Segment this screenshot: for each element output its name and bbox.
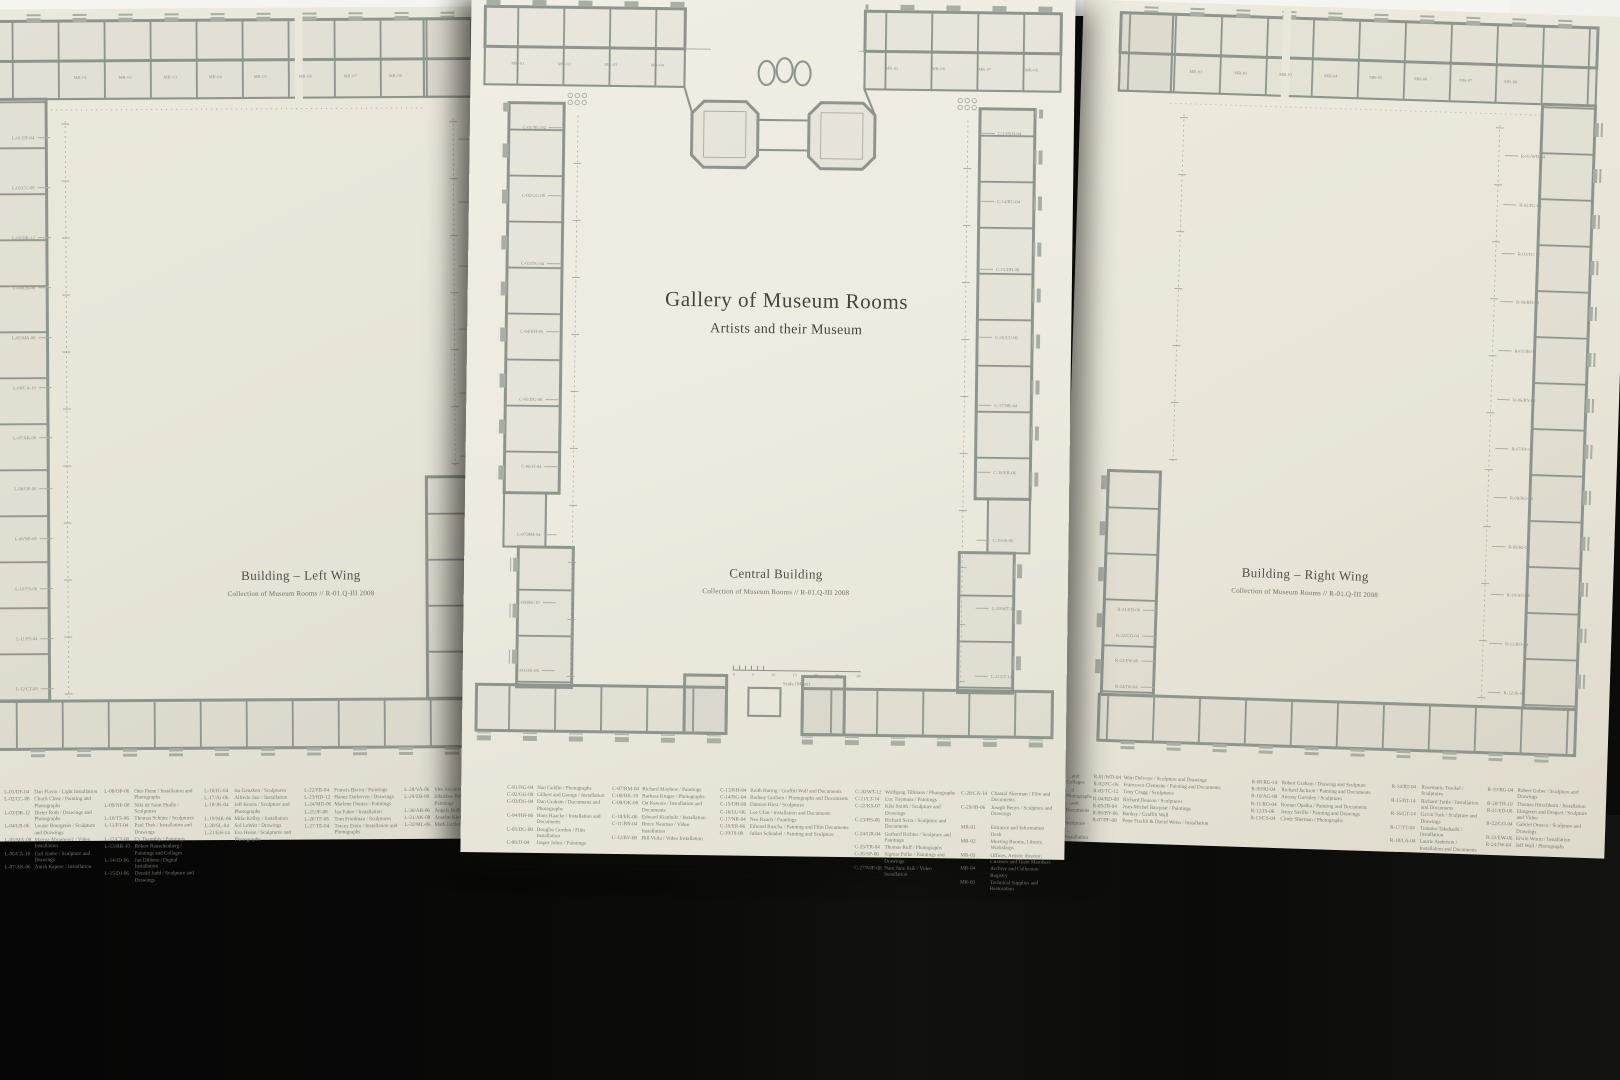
- poster-left-wing: MR-01MR-02MR-03MR-04MR-05MR-06MR-07MR-08…: [0, 6, 511, 841]
- legend-entry: C-12/BV-08Bill Viola / Video Installatio…: [612, 835, 714, 843]
- edge-label: L-03/DR-12: [12, 235, 51, 240]
- edge-label-column-left: C-01/NG-04C-02/GG-08C-03/DG-04C-04/HH-06…: [503, 125, 562, 674]
- edge-label: C-09/OK-06: [516, 668, 555, 674]
- legend-entry: C-03/DG-04Dan Graham / Documents and Pho…: [507, 799, 606, 813]
- edge-label: R-11/RO-04: [1489, 641, 1528, 647]
- legend-column: C-13/KH-04Keith Haring / Graffiti Wall a…: [719, 787, 855, 891]
- edge-label: R-12/JS-06: [1487, 690, 1524, 696]
- room-code: MR-08: [1025, 67, 1038, 72]
- legend-entry: C-27/NJP-08Nam June Paik / Video Install…: [854, 865, 954, 879]
- room-code: MR-06: [299, 74, 312, 79]
- legend-entry: C-09/OK-06On Kawara / Installation and D…: [612, 800, 714, 814]
- legend-entry: L-14/JD-06Jan Dibbets / Digital Installa…: [105, 857, 199, 870]
- legend-entry: C-24/GR-04Gerhard Richter / Sculpture an…: [855, 831, 955, 845]
- edge-label: L-05/MA-08: [12, 335, 52, 340]
- poster-central-building: MR-01MR-02MR-03MR-04 MR-05MR-06MR-07MR-0…: [460, 0, 1075, 860]
- legend-column: C-28/CA-14Chantal Akerman / Film and Doc…: [960, 791, 1059, 895]
- legend-column: C-01/NG-04Nan Goldin / PhotographsC-02/G…: [506, 785, 612, 889]
- legend-entry: L-25/JF-08Jan Fabre / Installation: [304, 809, 398, 816]
- edge-label-column-left: R-21/ED-06R-22/GO-04R-23/EW-06R-24/JW-04: [1090, 606, 1157, 690]
- room-code: MR-02: [119, 75, 132, 80]
- legend-entry: R-18/LA-04Laurie Anderson / Installation…: [1389, 838, 1479, 854]
- legend-entry: L-02/CC-08Chuck Close / Painting and Pho…: [4, 796, 98, 809]
- room-code: MR-04: [209, 74, 222, 79]
- legend-entry: L-01/DF-04Dan Flavin / Light Installatio…: [4, 789, 98, 796]
- legend-fragment: …and Documents: [1065, 800, 1086, 813]
- edge-label: R-10/AG-08: [1491, 592, 1530, 598]
- scale-tick-label: 20: [814, 673, 818, 678]
- edge-label: R-06/BY-06: [1497, 397, 1536, 403]
- legend-entry: L-12/CT-08Cy Twombly / Paintings: [105, 836, 199, 843]
- scale-tick-label: 40: [857, 673, 861, 678]
- edge-label: L-07/AK-06: [13, 436, 52, 441]
- edge-label: C-02/GG-08: [522, 193, 561, 199]
- edge-label: R-23/EW-06: [1115, 658, 1155, 664]
- legend-fragment: …and Collages: [1066, 773, 1087, 786]
- legend-entry: L-26/TF-06Tom Friedman / Sculptures: [304, 816, 398, 823]
- legend-central-building: C-01/NG-04Nan Goldin / PhotographsC-02/G…: [506, 785, 1059, 895]
- edge-label: R-09/RJ-04: [1492, 543, 1530, 549]
- sheet-caption: Building – Left Wing: [151, 567, 451, 585]
- edge-label: C-15/DH-08: [980, 267, 1019, 273]
- edge-label: C-14/RG-04: [981, 199, 1020, 205]
- edge-label: R-21/ED-06: [1117, 607, 1156, 613]
- legend-column: C-20/WT-12Wolfgang Tillmans / Photograph…: [854, 789, 961, 893]
- edge-label-column-left: L-01/DF-04L-02/CC-08L-03/DR-12L-04/LB-06…: [0, 135, 54, 691]
- edge-label: R-01/WD-04: [1505, 153, 1545, 159]
- edge-label: R-07/PF-08: [1495, 446, 1533, 452]
- legend-entry: C-23/RS-06Richard Serra / Sculpture and …: [855, 817, 955, 831]
- scale-tick-label: 0: [733, 672, 735, 677]
- legend-entry: L-09/NP-08Niki de Saint Phalle / Sculptu…: [104, 802, 198, 815]
- sheet-caption: Central Building: [626, 564, 926, 584]
- legend-entry: C-19/JS-06Julian Schnabel / Painting and…: [720, 831, 849, 839]
- edge-label: L-02/CC-08: [12, 185, 50, 190]
- legend-entry: L-08/OP-06Otto Piene / Installation and …: [104, 788, 198, 801]
- edge-label-column-right: C-13/KH-04C-14/RG-04C-15/DH-08C-16/LU-06…: [975, 131, 1036, 680]
- legend-entry: L-21/EH-14Eva Hesse / Sculptures and Pho…: [204, 830, 298, 843]
- room-code: MR-05: [1369, 75, 1382, 80]
- room-code: MR-01: [511, 61, 524, 66]
- scale-ticks: 051015203040: [733, 672, 861, 679]
- edge-label: C-18/ER-06: [977, 470, 1016, 476]
- edge-label: C-21/LT-14: [975, 674, 1012, 679]
- room-code: MR-05: [885, 66, 898, 71]
- room-code: MR-06: [932, 66, 945, 71]
- legend-entry: L-03/DR-12Dieter Roth / Drawings and Pho…: [4, 810, 98, 823]
- room-code: MR-03: [604, 62, 617, 67]
- scale-tick-label: 15: [793, 672, 797, 677]
- legend-entry: C-04/HH-06Hans Haacke / Installation and…: [507, 813, 606, 827]
- legend-column-fragment: …and Collages…d Photographs…and Document…: [1065, 773, 1094, 842]
- legend-fragment: …d Photographs: [1066, 787, 1087, 800]
- edge-label: L-04/LB-06: [13, 285, 51, 290]
- scale-tick-label: 30: [835, 673, 839, 678]
- legend-entry: L-05/MA-08Marina Abramović / Video Insta…: [5, 837, 99, 850]
- legend-entry: L-27/TE-04Tracey Emin / Installation and…: [304, 823, 398, 836]
- edge-label: C-07/RM-04: [517, 532, 557, 538]
- legend-column: C-07/RM-04Richard Mayhew / PaintingsC-08…: [611, 786, 720, 890]
- legend-entry: MR-03Offices, Artistic director, Curator…: [960, 852, 1052, 866]
- legend-column: R-14/RT-04Rosemarie Trockel / Sculptures…: [1389, 784, 1487, 855]
- legend-entry: MR-02Meeting Rooms, Library, Workshops: [960, 839, 1052, 853]
- edge-label: C-03/DG-04: [521, 261, 560, 267]
- edge-label: L-11/PT-04: [16, 636, 53, 641]
- poster-title-block: Gallery of Museum Rooms Artists and thei…: [586, 286, 987, 341]
- legend-column: L-16/IG-04Isa Genzken / SculpturesL-17/A…: [204, 788, 305, 885]
- edge-label: C-06/JJ-04: [521, 464, 557, 469]
- legend-left-wing: L-01/DF-04Dan Flavin / Light Installatio…: [4, 786, 505, 885]
- room-code: MR-07: [978, 67, 991, 72]
- edge-label: C-04/HH-06: [520, 328, 559, 334]
- legend-column: R-19/RG-04Robert Gober / Sculpture and D…: [1485, 787, 1601, 859]
- edge-label: C-13/KH-04: [982, 131, 1021, 137]
- edge-label: L-08/OP-06: [14, 486, 52, 491]
- legend-entry: L-06/CA-10Carl Andre / Sculpture and Dra…: [5, 851, 99, 864]
- edge-label: C-17/NR-04: [978, 402, 1017, 408]
- legend-entry: L-18/JK-04Jeff Koons / Sculpture and Pho…: [204, 802, 298, 815]
- legend-column: L-22/FB-04Francis Bacon / PaintingsL-23/…: [304, 787, 405, 884]
- legend-entry: C-05/DG-08Douglas Gordon / Film Installa…: [507, 826, 606, 840]
- legend-entry: L-22/FB-04Francis Bacon / Paintings: [304, 787, 398, 794]
- scale-tick-label: 5: [752, 672, 754, 677]
- edge-label: R-05/JB-04: [1499, 348, 1537, 354]
- legend-column: R-08/RG-14Robert Graham / Drawing and Sc…: [1249, 779, 1391, 852]
- legend-fragment: …Installation: [1065, 828, 1086, 841]
- edge-label: L-06/CA-10: [13, 386, 52, 391]
- legend-fragment: …Sculpture: [1065, 814, 1086, 827]
- room-code: MR-02: [558, 61, 571, 66]
- legend-entry: C-29/JB-06Joseph Beuys / Sculpture and D…: [961, 804, 1053, 818]
- edge-label: L-10/TS-06: [15, 586, 53, 591]
- room-code: MR-07: [1459, 78, 1472, 83]
- legend-entry: MR-04Archive and Collection Registry: [960, 866, 1052, 880]
- room-code: MR-06: [1414, 76, 1427, 81]
- room-code: MR-05: [254, 74, 267, 79]
- scale-tick-label: 10: [771, 672, 775, 677]
- legend-entry: L-24/MD-06Marlene Dumas / Paintings: [304, 801, 398, 808]
- room-code: MR-08: [389, 73, 402, 78]
- legend-column: L-08/OP-06Otto Piene / Installation and …: [104, 788, 205, 885]
- edge-label: R-22/GO-04: [1116, 632, 1155, 638]
- legend-entry: C-06/JJ-04Jasper Johns / Paintings: [506, 840, 605, 848]
- room-code: MR-04: [1324, 73, 1337, 78]
- edge-label: C-01/NG-04: [523, 125, 562, 131]
- legend-entry: C-22/KS-07Kiki Smith / Sculpture and Dra…: [855, 804, 955, 818]
- legend-entry: L-15/DJ-06Donald Judd / Sculpture and Dr…: [105, 871, 199, 884]
- legend-entry: L-11/PT-04Paul Thek / Installation and D…: [104, 823, 198, 836]
- room-code: MR-04: [651, 62, 664, 67]
- legend-entry: C-11/BN-04Bruce Nauman / Video Installat…: [612, 821, 714, 835]
- sheet-caption-block: Building – Left Wing Collection of Museu…: [151, 567, 451, 599]
- legend-entry: L-16/IG-04Isa Genzken / Sculptures: [204, 788, 298, 795]
- edge-label: R-04/RD-08: [1500, 299, 1539, 305]
- edge-label: C-20/WT-12: [976, 606, 1015, 612]
- legend-entry: L-13/RR-10Robert Rauschenberg / Painting…: [105, 843, 199, 856]
- legend-entry: L-23/HD-12Hanne Darboven / Drawings: [304, 794, 398, 801]
- room-code: MR-08: [1504, 79, 1517, 84]
- sheet-caption-block: Central Building Collection of Museum Ro…: [626, 564, 926, 598]
- poster-right-wing: MR-01MR-02MR-03MR-04MR-05MR-06MR-07MR-08…: [1057, 0, 1620, 859]
- edge-label: C-05/DG-08: [519, 396, 558, 402]
- edge-label: L-12/CT-08: [16, 686, 54, 691]
- edge-label: R-03/TC-12: [1502, 251, 1541, 257]
- edge-label: L-01/DF-04: [12, 135, 50, 140]
- legend-entry: MR-05Technical Supplies and Restoration: [960, 879, 1052, 893]
- legend-entry: L-04/LB-06Louise Bourgeois / Sculpture a…: [4, 823, 98, 836]
- floor-plan-left-wing: [0, 6, 511, 841]
- legend-entry: L-20/SL-04Sol LeWitt / Drawings: [204, 823, 298, 830]
- edge-label: C-19/JS-06: [976, 538, 1013, 543]
- edge-label: R-08/RG-14: [1494, 495, 1533, 501]
- room-code: MR-02: [1234, 70, 1247, 75]
- edge-label: C-08/BK-10: [517, 600, 556, 606]
- room-code: MR-01: [74, 75, 87, 80]
- poster-title: Gallery of Museum Rooms: [586, 286, 986, 316]
- photo-of-three-museum-floor-plan-posters: { "poster": { "title": "Gallery of Museu…: [0, 0, 1620, 1080]
- legend-entry: MR-01Entrance and Information Desk: [961, 825, 1053, 839]
- room-code: MR-01: [1189, 69, 1202, 74]
- legend-entry: L-07/AK-06Anish Kapoor / Installation: [5, 864, 99, 871]
- room-code: MR-03: [164, 74, 177, 79]
- room-code: MR-03: [1279, 72, 1292, 77]
- legend-entry: C-26/SP-06Sigmar Polke / Paintings and D…: [854, 852, 954, 866]
- legend-column: R-01/WD-04Wim Delvoye / Sculpture and Dr…: [1092, 774, 1252, 847]
- legend-entry: L-19/MK-06Mike Kelley / Installation: [204, 816, 298, 823]
- legend-column: L-01/DF-04Dan Flavin / Light Installatio…: [4, 789, 105, 886]
- scale-bar: 051015203040 Scale (Meter): [733, 666, 861, 689]
- edge-label: L-09/NP-08: [14, 536, 52, 541]
- legend-entry: L-10/TS-06Thomas Schütte / Sculptures: [104, 815, 198, 822]
- legend-entry: C-28/CA-14Chantal Akerman / Film and Doc…: [961, 791, 1053, 805]
- edge-label: R-02/FC-06: [1503, 202, 1541, 208]
- room-code: MR-07: [344, 73, 357, 78]
